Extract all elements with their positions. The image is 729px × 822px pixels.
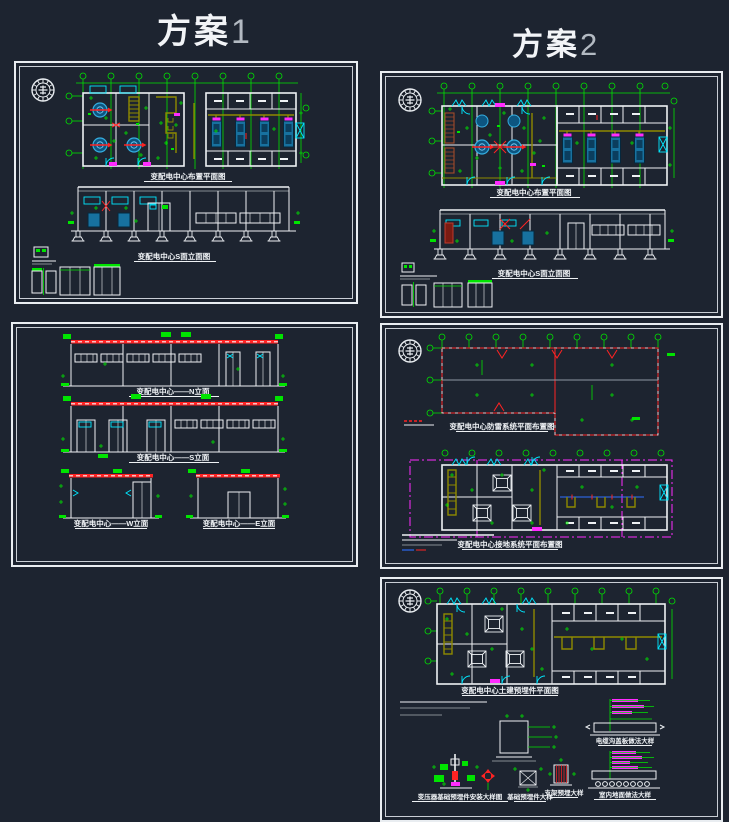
section-bottom-title: 室内地面做法大样 <box>599 790 652 799</box>
sheet-scheme1-layout[interactable]: 变配电中心布置平面图 <box>14 61 358 304</box>
civil-plan-title: 变配电中心土建预埋件平面图 <box>461 685 559 695</box>
scheme1-layout-drawing: 变配电中心布置平面图 <box>16 63 356 302</box>
roof-plan-title: 变配电中心防雷系统平面布置图 <box>450 421 555 431</box>
elevation-title: 变配电中心S面立面图 <box>138 251 211 261</box>
n-elevation-title: 变配电中心——N立面 <box>137 386 210 396</box>
scheme2-title: 方案2 <box>512 19 597 64</box>
detail-left-title: 变压器基础预埋件安装大样图 <box>418 792 503 801</box>
sheet-scheme1-elevations[interactable]: 变配电中心——N立面 变配电中心——S立面 <box>11 322 358 567</box>
plan-title: 变配电中心布置平面图 <box>151 171 226 181</box>
sheet-scheme2-systems[interactable]: 变配电中心防雷系统平面布置图 <box>380 323 723 569</box>
detail-right-title: 支架预埋大样 <box>544 788 585 797</box>
sheet-scheme2-layout[interactable]: 变配电中心布置平面图 变配电中心S面立面图 <box>380 71 723 318</box>
scheme1-number: 1 <box>231 13 250 51</box>
e-elevation-title: 变配电中心——E立面 <box>203 518 276 528</box>
s-elevation-title: 变配电中心——S立面 <box>137 452 210 462</box>
sheet-scheme2-civil[interactable]: 变配电中心土建预埋件平面图 变 <box>380 577 723 822</box>
scheme1-elevations-drawing: 变配电中心——N立面 变配电中心——S立面 <box>13 324 356 565</box>
scheme2-layout-drawing: 变配电中心布置平面图 变配电中心S面立面图 <box>382 73 721 316</box>
grounding-plan-title: 变配电中心接地系统平面布置图 <box>458 539 563 549</box>
section-top-title: 电缆沟盖板做法大样 <box>596 736 655 745</box>
scheme2-civil-drawing: 变配电中心土建预埋件平面图 变 <box>382 579 721 820</box>
elevation-title: 变配电中心S面立面图 <box>498 268 571 278</box>
scheme2-number: 2 <box>580 27 597 62</box>
plan-title: 变配电中心布置平面图 <box>497 187 572 197</box>
scheme2-systems-drawing: 变配电中心防雷系统平面布置图 <box>382 325 721 567</box>
cad-drawing-canvas: { "headers": { "scheme1": {"label": "方案"… <box>0 0 729 821</box>
scheme1-title: 方案1 <box>157 4 250 53</box>
w-elevation-title: 变配电中心——W立面 <box>74 518 149 528</box>
